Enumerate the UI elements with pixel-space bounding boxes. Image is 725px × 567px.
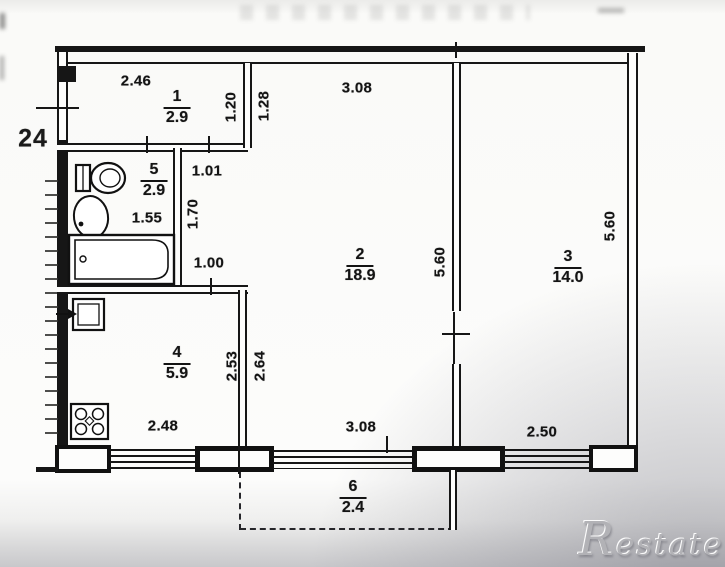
dim-tick [455,42,457,58]
balcony-bottom-edge [240,528,454,530]
wall-right-exterior [627,53,638,448]
wall-hall-right [243,63,252,148]
dim-tick [210,278,212,295]
room-number: 5 [141,161,168,182]
dim-hall-top: 2.46 [121,73,151,90]
room-label-6-balcony: 6 2.4 [340,478,367,516]
room-area: 2.4 [342,499,364,516]
wall-room2-room3-upper [452,63,461,311]
room-label-1: 1 2.9 [164,88,191,126]
dim-corridor-width: 1.01 [192,163,222,180]
dim-room3-window: 2.50 [527,424,557,441]
dim-room2-top: 3.08 [342,80,372,97]
wall-pier-left [55,445,111,473]
dim-kitchen-depth: 2.53 [224,351,241,381]
balcony-left-edge [239,472,241,530]
apartment-unit-number: 24 [18,125,48,154]
room3-window [504,449,590,469]
dim-bath-width: 1.55 [132,210,162,227]
room-area: 14.0 [552,269,583,286]
room-number: 1 [164,88,191,109]
dim-room2-window: 3.08 [346,419,376,436]
room-area: 2.9 [166,109,188,126]
balcony-right-edge [449,470,457,530]
dim-tick [208,136,210,153]
scan-edge-mark-1 [0,13,5,29]
scan-ghost-mark [598,8,624,13]
room-label-5: 5 2.9 [141,161,168,199]
room-number: 6 [340,478,367,499]
room-area: 5.9 [166,365,188,382]
wall-top-exterior [55,46,645,52]
wall-bathroom-kitchen [57,285,248,294]
dim-room2-side: 5.60 [432,247,449,277]
dim-niche-left: 1.20 [223,92,240,122]
room-label-3: 3 14.0 [552,248,583,286]
wall-room2-room3-lower [452,364,461,447]
wall-hall-bottom [57,143,248,152]
scan-ghost-text [240,5,530,20]
dim-corridor-length: 1.70 [185,199,202,229]
dim-niche-right: 1.28 [256,91,273,121]
room-number: 2 [347,246,374,267]
balcony-window [273,450,413,469]
floor-plan-page: 1 2.9 5 2.9 2 18.9 3 14.0 4 5.9 6 2.4 24… [0,0,725,567]
dim-tick [146,136,148,153]
balcony-edge-tick [238,436,240,474]
room-number: 4 [164,344,191,365]
dim-tick [386,436,388,453]
wall-top-interior-line [66,62,631,64]
kitchen-sink-icon [56,297,106,333]
dim-kitchen-bottom: 2.48 [148,418,178,435]
room-area: 2.9 [143,182,165,199]
dim-tick [442,333,470,335]
room-number: 3 [555,248,582,269]
bathtub-icon [68,234,176,286]
entry-door-jamb [59,66,76,82]
dim-kitchen-entry: 1.00 [194,255,224,272]
dim-room2-left-depth: 2.64 [252,351,269,381]
dim-room3-side: 5.60 [602,211,619,241]
kitchen-window [110,449,196,469]
scan-edge-mark-2 [0,56,4,80]
facade-stub-left [36,467,58,472]
restate-watermark: Restate [579,512,724,567]
dim-tick [36,107,79,109]
wall-pier-middle [412,446,505,472]
wall-pier-right [589,445,638,472]
room-label-4: 4 5.9 [164,344,191,382]
room-area: 18.9 [344,267,375,284]
room-label-2: 2 18.9 [344,246,375,284]
balcony-door-pier [195,446,274,472]
wall-left-lower [57,140,68,448]
door-leaf-room3 [453,312,455,364]
stove-icon [70,403,110,441]
